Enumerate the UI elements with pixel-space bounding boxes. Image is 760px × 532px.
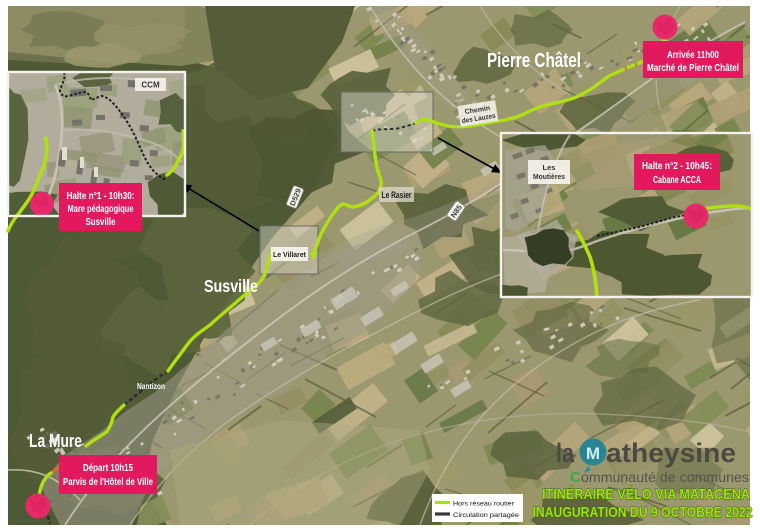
svg-text:Mare pédagogique: Mare pédagogique	[68, 204, 134, 215]
svg-text:la: la	[556, 438, 575, 468]
svg-text:C: C	[570, 469, 581, 486]
svg-text:Circulation partagée: Circulation partagée	[453, 512, 519, 519]
svg-text:Le Villaret: Le Villaret	[273, 250, 306, 259]
svg-text:M: M	[586, 444, 600, 463]
svg-text:Halte n°2 - 10h45:: Halte n°2 - 10h45:	[642, 161, 712, 172]
svg-text:ommunauté de communes: ommunauté de communes	[581, 469, 749, 485]
svg-text:Les: Les	[543, 163, 556, 172]
svg-text:Arrivée 11h00: Arrivée 11h00	[667, 50, 719, 61]
svg-text:Susville: Susville	[86, 217, 116, 228]
svg-text:Parvis de l'Hôtel de Ville: Parvis de l'Hôtel de Ville	[63, 477, 153, 488]
svg-text:atheysine: atheysine	[606, 438, 736, 468]
svg-text:Halte n°1 - 10h30:: Halte n°1 - 10h30:	[67, 191, 135, 202]
svg-text:La Mure: La Mure	[29, 431, 82, 451]
svg-text:Marché de Pierre Châtel: Marché de Pierre Châtel	[647, 63, 739, 74]
svg-text:Nantizon: Nantizon	[137, 382, 165, 391]
svg-text:Départ 10h15: Départ 10h15	[83, 463, 133, 474]
svg-text:Cabane ACCA: Cabane ACCA	[653, 175, 701, 186]
svg-text:Susville: Susville	[204, 276, 258, 296]
svg-text:Moutières: Moutières	[533, 172, 565, 181]
svg-text:Hors réseau routier: Hors réseau routier	[453, 501, 515, 508]
svg-text:CCM: CCM	[141, 81, 160, 90]
svg-text:Le Rasier: Le Rasier	[382, 190, 412, 200]
svg-text:INAUGURATION DU 9 OCTOBRE 2022: INAUGURATION DU 9 OCTOBRE 2022	[533, 504, 753, 521]
svg-text:Pierre Châtel: Pierre Châtel	[487, 50, 581, 72]
svg-text:ITINÉRAIRE VÉLO VIA MATACENA: ITINÉRAIRE VÉLO VIA MATACENA	[542, 486, 750, 503]
